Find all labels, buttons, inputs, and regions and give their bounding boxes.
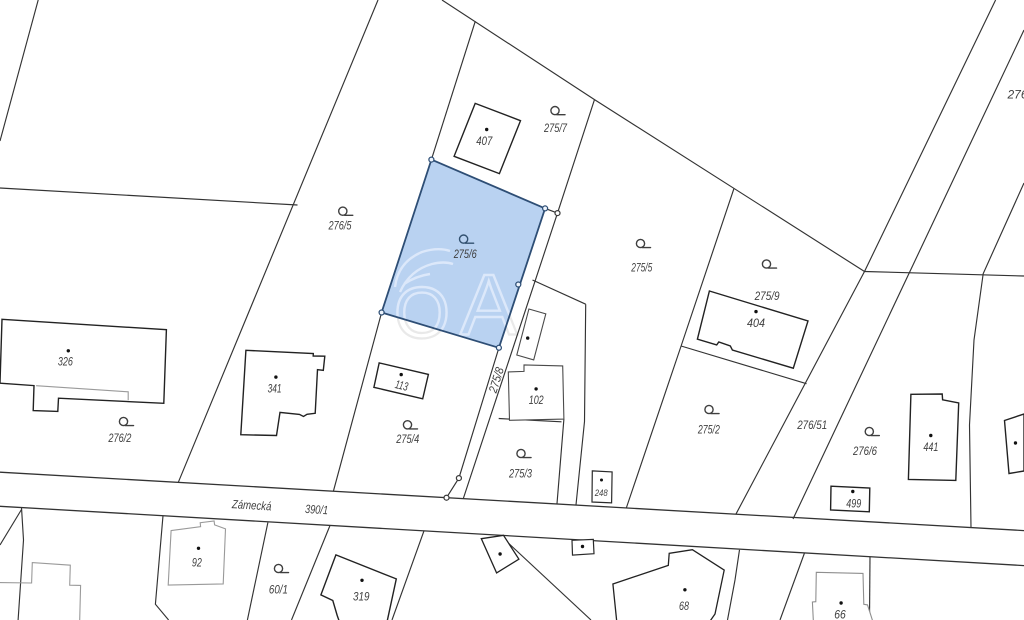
svg-text:92: 92: [192, 556, 202, 570]
svg-text:276/5: 276/5: [328, 219, 352, 233]
svg-text:68: 68: [679, 599, 689, 613]
svg-text:275/3: 275/3: [508, 467, 532, 481]
svg-text:248: 248: [594, 488, 608, 498]
svg-text:441: 441: [923, 440, 938, 454]
svg-text:60/1: 60/1: [269, 583, 288, 597]
svg-text:341: 341: [268, 382, 282, 396]
svg-text:275/2: 275/2: [697, 423, 720, 437]
svg-text:275/9: 275/9: [754, 289, 780, 303]
svg-text:407: 407: [476, 134, 493, 148]
svg-text:275/7: 275/7: [543, 121, 568, 135]
svg-text:276/: 276/: [1007, 88, 1024, 102]
svg-text:326: 326: [58, 354, 73, 368]
svg-text:404: 404: [747, 316, 765, 330]
svg-text:276/6: 276/6: [852, 444, 877, 458]
svg-text:276/2: 276/2: [108, 431, 132, 445]
svg-text:319: 319: [353, 589, 370, 603]
svg-text:499: 499: [846, 497, 861, 511]
svg-text:390/1: 390/1: [305, 502, 329, 517]
svg-text:276/51: 276/51: [796, 418, 827, 432]
svg-text:275/5: 275/5: [631, 261, 653, 275]
svg-text:275/6: 275/6: [453, 247, 477, 261]
svg-text:275/4: 275/4: [396, 432, 420, 446]
svg-text:102: 102: [529, 393, 544, 407]
svg-text:66: 66: [834, 608, 846, 620]
svg-text:Zámecká: Zámecká: [231, 497, 272, 513]
